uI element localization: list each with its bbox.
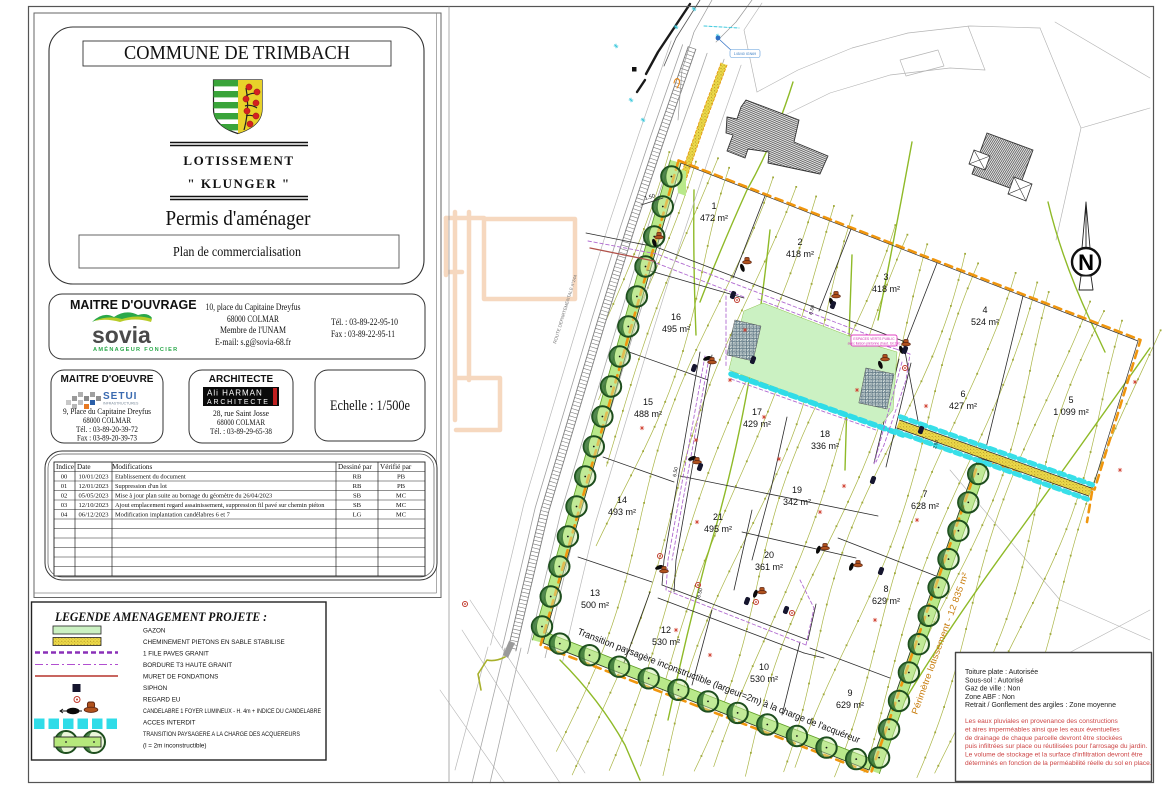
svg-text:8: 8 <box>883 584 888 594</box>
svg-text:7: 7 <box>922 489 927 499</box>
svg-text:AMÉNAGEUR FONCIER: AMÉNAGEUR FONCIER <box>93 345 179 353</box>
svg-text:00: 00 <box>61 474 68 481</box>
svg-text:13: 13 <box>590 588 600 598</box>
svg-text:14: 14 <box>617 495 627 505</box>
svg-text:Membre de l'UNAM: Membre de l'UNAM <box>220 326 286 336</box>
svg-text:Suppression d'un lot: Suppression d'un lot <box>115 483 167 490</box>
svg-text:530 m²: 530 m² <box>750 674 778 684</box>
svg-text:9: 9 <box>847 688 852 698</box>
svg-text:PB: PB <box>397 483 406 490</box>
svg-text:12: 12 <box>661 625 671 635</box>
svg-text:TRANSITION PAYSAGERE A LA CHAR: TRANSITION PAYSAGERE A LA CHARGE DES ACQ… <box>143 731 300 738</box>
svg-text:MURET DE FONDATIONS: MURET DE FONDATIONS <box>143 674 218 681</box>
svg-text:Les eaux pluviales en provenan: Les eaux pluviales en provenance des con… <box>965 718 1119 725</box>
svg-text:10/01/2023: 10/01/2023 <box>78 474 109 481</box>
svg-text:429 m²: 429 m² <box>743 419 771 429</box>
svg-text:1 099 m²: 1 099 m² <box>1053 407 1089 417</box>
svg-text:15: 15 <box>643 397 653 407</box>
svg-text:12/01/2023: 12/01/2023 <box>78 483 109 490</box>
svg-text:LG: LG <box>353 512 362 519</box>
svg-text:déterminés en fonction de la p: déterminés en fonction de la perméabilit… <box>965 760 1152 767</box>
svg-text:03: 03 <box>61 502 68 509</box>
svg-text:3: 3 <box>883 272 888 282</box>
svg-text:COMMUNE DE TRIMBACH: COMMUNE DE TRIMBACH <box>124 42 350 64</box>
svg-text:418 m²: 418 m² <box>786 249 814 259</box>
svg-text:E-mail: s.g@sovia-68.fr: E-mail: s.g@sovia-68.fr <box>215 337 292 348</box>
svg-text:Vérifié par: Vérifié par <box>380 463 412 471</box>
svg-text:20: 20 <box>764 550 774 560</box>
svg-text:524 m²: 524 m² <box>971 317 999 327</box>
svg-text:BORDURE T3 HAUTE GRANIT: BORDURE T3 HAUTE GRANIT <box>143 662 232 669</box>
svg-text:CHEMINEMENT PIETONS EN SABLE S: CHEMINEMENT PIETONS EN SABLE STABILISE <box>143 639 285 646</box>
svg-text:INFRASTRUCTURES: INFRASTRUCTURES <box>103 402 139 406</box>
svg-text:Etablissement du document: Etablissement du document <box>115 474 186 481</box>
svg-text:Modifications: Modifications <box>112 463 153 471</box>
svg-text:RB: RB <box>353 483 362 490</box>
svg-text:MAITRE D'OUVRAGE: MAITRE D'OUVRAGE <box>70 298 197 312</box>
svg-text:Tél. : 03-89-22-95-10: Tél. : 03-89-22-95-10 <box>331 318 398 328</box>
svg-text:REGARD EU: REGARD EU <box>143 697 181 704</box>
svg-text:Indice: Indice <box>56 463 74 471</box>
svg-text:SIPHON: SIPHON <box>143 685 168 692</box>
svg-text:Mise à jour plan suite au born: Mise à jour plan suite au bornage du géo… <box>115 493 272 500</box>
svg-text:Date: Date <box>77 463 91 471</box>
svg-text:et aires imperméables ainsi qu: et aires imperméables ainsi que les eaux… <box>965 726 1120 733</box>
svg-text:Fax : 03-89-22-95-11: Fax : 03-89-22-95-11 <box>331 330 395 340</box>
svg-text:06/12/2023: 06/12/2023 <box>78 512 109 519</box>
svg-text:5: 5 <box>1068 395 1073 405</box>
svg-text:(l = 2m inconstructible): (l = 2m inconstructible) <box>143 743 207 750</box>
svg-text:Le volume de stockage et la su: Le volume de stockage et la surface d'in… <box>965 752 1143 759</box>
svg-text:18: 18 <box>820 429 830 439</box>
svg-text:LEGENDE AMENAGEMENT PROJETE :: LEGENDE AMENAGEMENT PROJETE : <box>54 609 267 624</box>
svg-text:68000 COLMAR: 68000 COLMAR <box>227 315 280 325</box>
svg-text:10, place du Capitaine Dreyfus: 10, place du Capitaine Dreyfus <box>206 302 301 313</box>
svg-text:495 m²: 495 m² <box>662 324 690 334</box>
svg-text:500 m²: 500 m² <box>581 600 609 610</box>
svg-text:336 m²: 336 m² <box>811 441 839 451</box>
svg-text:Zone ABF : Non: Zone ABF : Non <box>965 694 1015 701</box>
svg-text:17: 17 <box>752 407 762 417</box>
svg-text:CANDELABRE 1 FOYER LUMINEUX -: CANDELABRE 1 FOYER LUMINEUX - H. 4m + IN… <box>143 708 321 715</box>
svg-text:GAZON: GAZON <box>143 628 166 635</box>
svg-text:ARCHITECTE: ARCHITECTE <box>207 399 270 406</box>
svg-text:10: 10 <box>759 662 769 672</box>
svg-text:Retrait / Gonflement des argil: Retrait / Gonflement des argiles : Zone … <box>965 702 1116 709</box>
svg-text:19: 19 <box>792 485 802 495</box>
svg-text:361 m²: 361 m² <box>755 562 783 572</box>
svg-text:puis infiltrées sur place ou r: puis infiltrées sur place ou réutilisées… <box>965 743 1147 750</box>
svg-text:SB: SB <box>353 502 362 509</box>
svg-text:427 m²: 427 m² <box>949 401 977 411</box>
svg-text:Tél. : 03-89-29-65-38: Tél. : 03-89-29-65-38 <box>210 426 272 436</box>
svg-text:N: N <box>1078 250 1094 275</box>
svg-text:sovia: sovia <box>92 322 151 348</box>
svg-text:493 m²: 493 m² <box>608 507 636 517</box>
svg-text:Modification implantation cand: Modification implantation candélabres 6 … <box>115 512 231 519</box>
svg-text:MC: MC <box>396 502 407 509</box>
svg-text:418 m²: 418 m² <box>872 284 900 294</box>
svg-text:16: 16 <box>671 312 681 322</box>
svg-text:ARCHITECTE: ARCHITECTE <box>209 374 274 385</box>
svg-text:2: 2 <box>797 237 802 247</box>
svg-text:Dessiné par: Dessiné par <box>338 463 372 471</box>
svg-text:145/40 IGN69: 145/40 IGN69 <box>734 52 756 56</box>
svg-text:LOTISSEMENT: LOTISSEMENT <box>183 153 294 168</box>
svg-text:21: 21 <box>713 512 723 522</box>
svg-text:6: 6 <box>960 389 965 399</box>
svg-text:MAITRE D'OEUVRE: MAITRE D'OEUVRE <box>61 374 154 385</box>
svg-text:Permis d'aménager: Permis d'aménager <box>166 206 311 230</box>
svg-text:629 m²: 629 m² <box>836 700 864 710</box>
svg-text:avec liaison piétonne (haut.: avec liaison piétonne (haut. tot 2m) <box>848 342 901 346</box>
svg-text:4: 4 <box>982 305 987 315</box>
svg-text:Fax : 03-89-20-39-73: Fax : 03-89-20-39-73 <box>77 433 137 443</box>
svg-text:472 m²: 472 m² <box>700 213 728 223</box>
svg-text:MC: MC <box>396 493 407 500</box>
svg-text:ESPACES VERTS PUBLIC: ESPACES VERTS PUBLIC <box>853 337 895 341</box>
svg-text:05/05/2023: 05/05/2023 <box>78 493 109 500</box>
svg-text:1: 1 <box>711 201 716 211</box>
svg-text:1 FILE PAVES GRANIT: 1 FILE PAVES GRANIT <box>143 651 209 658</box>
svg-text:SETUI: SETUI <box>103 391 137 402</box>
svg-text:04: 04 <box>61 512 68 519</box>
svg-text:02: 02 <box>61 493 68 500</box>
svg-text:628 m²: 628 m² <box>911 501 939 511</box>
svg-text:RB: RB <box>353 474 362 481</box>
svg-text:Echelle : 1/500e: Echelle : 1/500e <box>330 398 410 414</box>
svg-text:342 m²: 342 m² <box>783 497 811 507</box>
svg-text:Toiture plate : Autorisée: Toiture plate : Autorisée <box>965 669 1038 676</box>
svg-text:Gaz de ville : Non: Gaz de ville : Non <box>965 686 1020 693</box>
svg-text:PB: PB <box>397 474 406 481</box>
svg-text:Ali HARMAN: Ali HARMAN <box>207 389 263 398</box>
svg-text:01: 01 <box>61 483 68 490</box>
svg-text:de drainage de chaque parcelle: de drainage de chaque parcelle devront ê… <box>965 735 1123 742</box>
svg-text:ACCES INTERDIT: ACCES INTERDIT <box>143 720 196 727</box>
svg-text:629 m²: 629 m² <box>872 596 900 606</box>
svg-text:530 m²: 530 m² <box>652 637 680 647</box>
svg-text:Sous-sol : Autorisé: Sous-sol : Autorisé <box>965 677 1023 684</box>
svg-text:12/10/2023: 12/10/2023 <box>78 502 109 509</box>
svg-text:Plan de commercialisation: Plan de commercialisation <box>173 245 301 260</box>
svg-text:488 m²: 488 m² <box>634 409 662 419</box>
svg-text:SB: SB <box>353 493 362 500</box>
svg-text:" KLUNGER ": " KLUNGER " <box>187 176 290 191</box>
svg-text:495 m²: 495 m² <box>704 524 732 534</box>
svg-text:Ajout emplacement regard assai: Ajout emplacement regard assainissement,… <box>115 502 325 509</box>
svg-text:MC: MC <box>396 512 407 519</box>
